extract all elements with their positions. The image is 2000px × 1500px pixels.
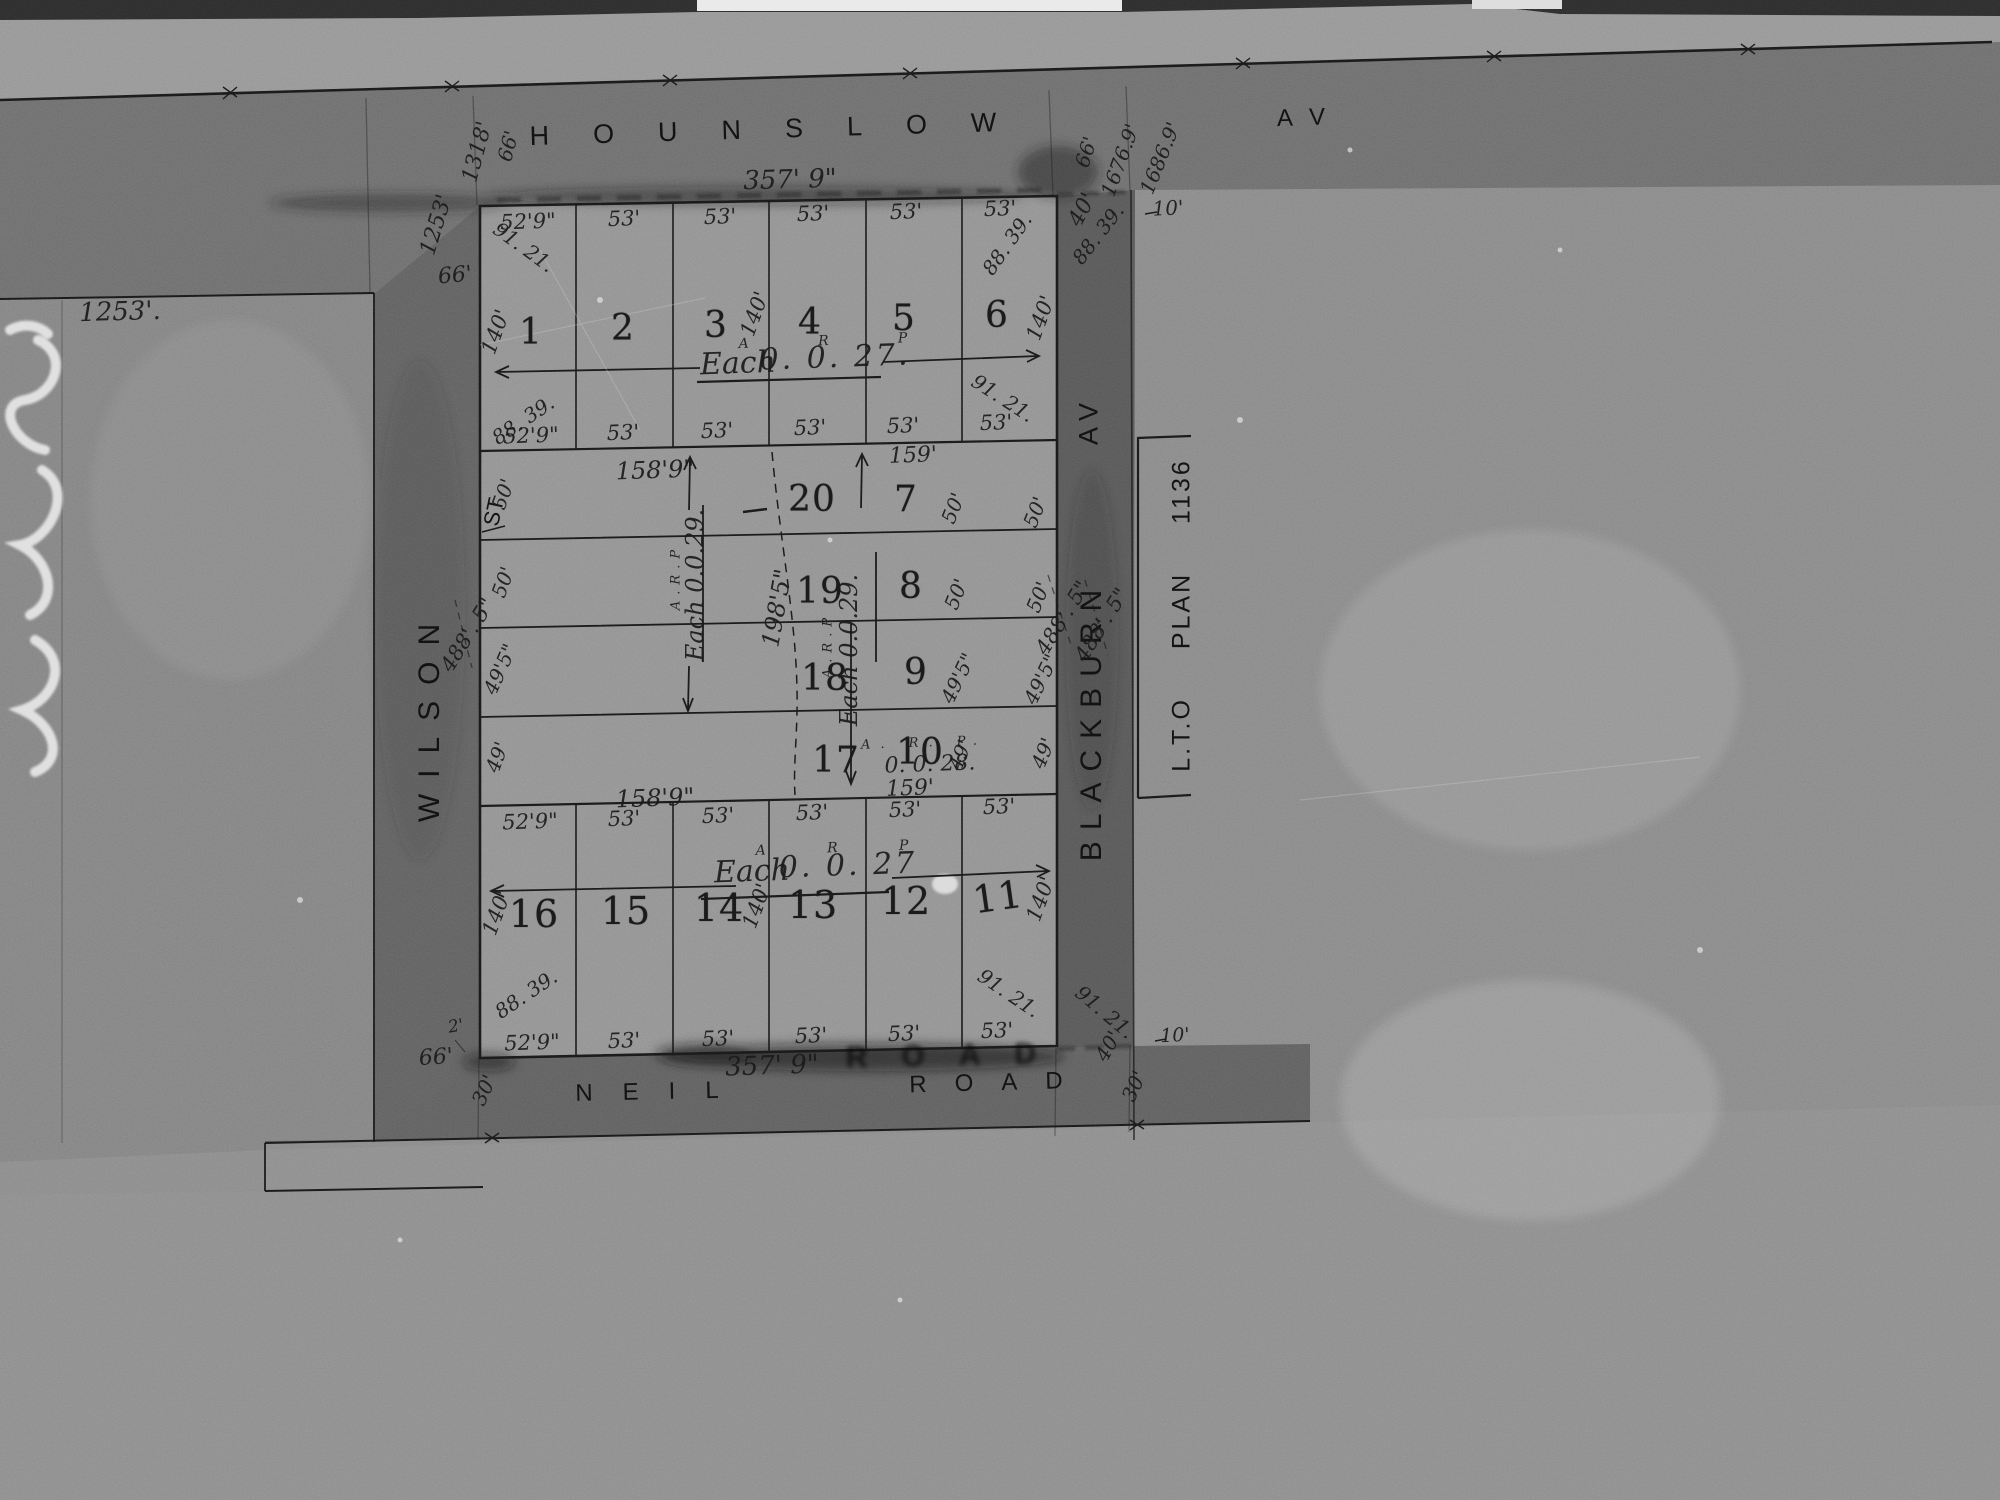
t1-bottom-dim-4: 53' [793, 417, 826, 439]
t3-bottom-dim-4: 53' [794, 1025, 827, 1047]
lot-number-8: 8 [899, 569, 923, 605]
lot-number-16: 16 [509, 895, 559, 933]
t1-bottom-dim-3: 53' [700, 420, 733, 442]
lot-number-1: 1 [519, 315, 543, 351]
lot-number-13: 13 [788, 886, 838, 924]
plan-linework [0, 0, 2000, 1500]
street-neil-road: ROAD [909, 1069, 1091, 1098]
t2-each-029-right: Each 0.0.29. [837, 574, 861, 726]
dim-1253-horizontal: 1253'. [79, 298, 161, 326]
t2-arp-right: A.R.P [822, 612, 835, 678]
lot-number-3: 3 [704, 308, 728, 344]
plan-reference: L.T.O PLAN 1136 [1170, 458, 1195, 772]
dim-bottom-frontage: 357' 9" [725, 1052, 819, 1081]
t3-top-dim-6: 53' [982, 796, 1015, 818]
lot-number-15: 15 [601, 892, 651, 930]
dim-66-wilson-bottom: 66' [418, 1046, 453, 1070]
t3-bottom-dim-2: 53' [607, 1030, 640, 1052]
film-grain-2 [0, 0, 2000, 1500]
lot-number-2: 2 [611, 311, 635, 347]
street-blackburn-av: AV [1076, 395, 1103, 445]
dim-10-bottom-right: 10' [1160, 1026, 1190, 1047]
lot-number-9: 9 [904, 655, 928, 691]
lot-number-17: 17 [812, 743, 860, 779]
dim-top-frontage: 357' 9" [743, 166, 837, 195]
lot17-area-value: 0. 0. 28. [884, 752, 976, 777]
dim-10-top-right: 10' [1152, 197, 1184, 219]
t1-area-value: 0. 0. 27. [759, 340, 911, 375]
t3-bottom-dim-1: 52'9" [504, 1032, 560, 1055]
t2-top-dim-right: 159' [889, 444, 938, 468]
lot-number-20: 20 [788, 482, 836, 518]
t2-each-029-left: Each 0.0.29. [683, 509, 707, 661]
lot-number-7: 7 [894, 482, 918, 518]
street-hounslow-av: AV [1276, 105, 1343, 131]
lot-number-14: 14 [694, 889, 744, 927]
t3-top-dim-5: 53' [888, 799, 921, 821]
street-road-ghost: ROAD [846, 1039, 1071, 1074]
street-neil: NEIL [575, 1078, 749, 1106]
t1-top-dim-4: 53' [796, 203, 829, 225]
scanned-survey-plan: HOUNSLOW AV WILSON ST BLACKBURN AV NEIL … [0, 0, 2000, 1500]
t3-top-dim-2: 53' [607, 808, 640, 830]
t3-bottom-dim-3: 53' [701, 1028, 734, 1050]
t3-top-dim-3: 53' [701, 805, 734, 827]
lot-number-6: 6 [985, 298, 1009, 334]
t2-top-dim-left: 158'9" [615, 457, 695, 484]
t1-bottom-dim-5: 53' [886, 415, 919, 437]
lot-number-12: 12 [881, 882, 931, 920]
dim-66-wilson-top: 66' [437, 264, 473, 289]
t1-top-dim-5: 53' [889, 201, 922, 223]
t1-top-dim-2: 53' [607, 208, 640, 230]
lot-number-11: 11 [970, 875, 1025, 920]
t3-top-dim-1: 52'9" [502, 811, 558, 834]
street-wilson: WILSON [415, 608, 445, 822]
t1-top-dim-3: 53' [703, 206, 736, 228]
t1-bottom-dim-2: 53' [606, 422, 639, 444]
t3-bottom-dim-5: 53' [887, 1023, 920, 1045]
t3-bottom-dim-6: 53' [980, 1020, 1013, 1042]
t3-top-dim-4: 53' [795, 802, 828, 824]
dim-2-bottom-left: 2' [447, 1017, 465, 1036]
